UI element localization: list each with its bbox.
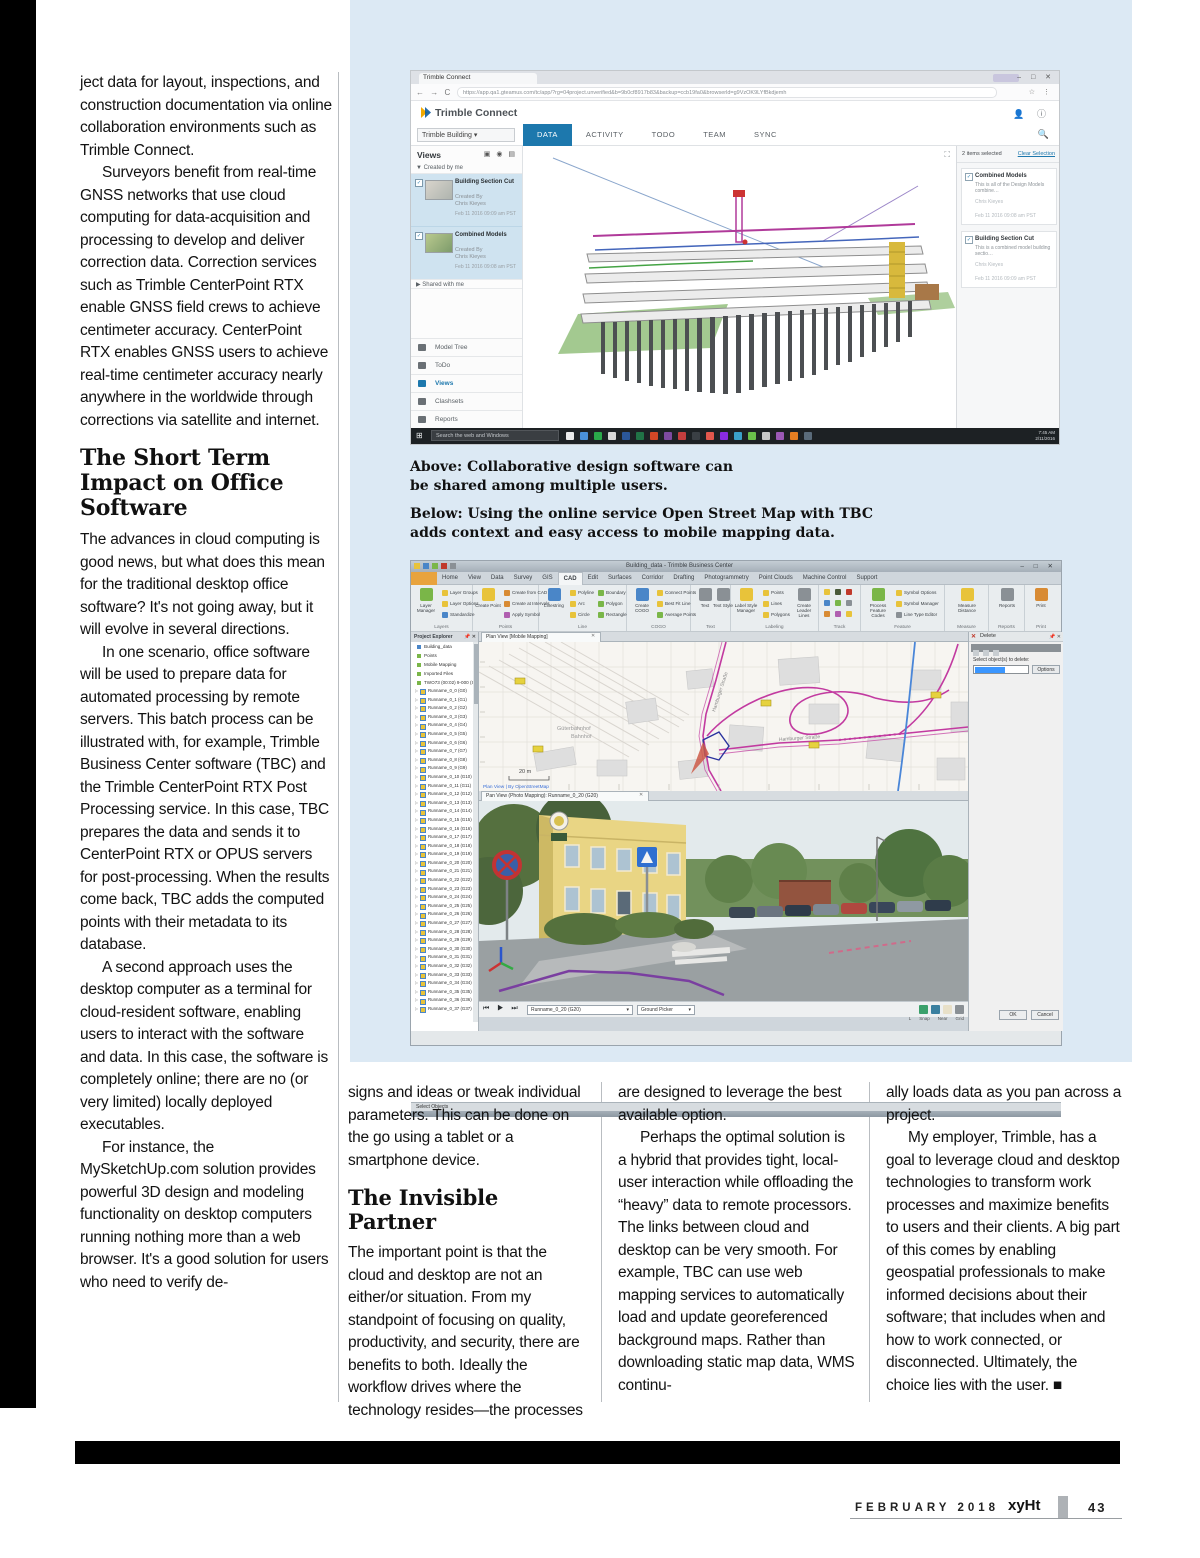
url-bar[interactable]: https://app.qa1.gteamus.com/tc/app/?rg=0… [457, 87, 997, 98]
side-nav-item[interactable]: Model Tree [411, 338, 522, 356]
side-nav-icon [418, 416, 426, 423]
run-icon [420, 904, 426, 910]
selected-item-title: Combined Models [975, 173, 1053, 180]
scrollbar-thumb[interactable] [474, 644, 478, 704]
boundary-button[interactable]: Boundary [597, 588, 626, 597]
run-item[interactable]: ▷Runname_0_5 (G5) [411, 730, 473, 739]
run-item[interactable]: ▷Runname_0_30 (G30) [411, 945, 473, 954]
close-tab-icon[interactable]: ✕ [639, 792, 643, 798]
linestring-button[interactable]: Linestring [541, 588, 567, 608]
run-item[interactable]: ▷Runname_0_9 (G9) [411, 764, 473, 773]
qat-icon[interactable] [423, 563, 429, 569]
run-item[interactable]: ▷Runname_0_37 (G37) [411, 1005, 473, 1014]
run-icon [420, 741, 426, 747]
ribbon-tab[interactable]: Drafting [668, 572, 699, 585]
expand-caret-icon[interactable]: ▷ [415, 687, 418, 696]
best-fit-line-icon [657, 601, 663, 607]
views-panel-action-icons[interactable]: ▣ ◉ ▤ [484, 150, 517, 158]
reports-button[interactable]: Reports [994, 588, 1020, 608]
delete-selection-input[interactable] [973, 665, 1029, 674]
run-icon [420, 818, 426, 824]
label-points-button[interactable]: Points [762, 588, 784, 597]
tc-side-nav: Model Tree ToDo Views Clashsets Reports [411, 338, 522, 428]
run-item[interactable]: ▷Runname_0_4 (G4) [411, 721, 473, 730]
selection-count: 2 items selected [962, 151, 1002, 157]
run-icon [420, 981, 426, 987]
tree-node[interactable]: Points [411, 651, 473, 660]
checkbox-checked-icon[interactable]: ✓ [415, 179, 423, 187]
taskbar-app-icon[interactable] [608, 432, 616, 440]
side-nav-icon [418, 344, 426, 351]
group-shared-with-me[interactable]: ▶ Shared with me [411, 279, 522, 289]
best-fit-line-button[interactable]: Best Fit Line [656, 599, 691, 608]
tree-root[interactable]: Building_data [411, 642, 473, 651]
run-item[interactable]: ▷Runname_0_6 (G6) [411, 739, 473, 748]
map-label-station1: Güterbahnhof [557, 726, 591, 732]
taskbar-app-icon[interactable] [566, 432, 574, 440]
create-point-button[interactable]: Create Point [475, 588, 501, 608]
run-icon [420, 689, 426, 695]
page-edge-bar [0, 0, 36, 1408]
selected-items-list: ✓ Combined Models This is all of the Des… [957, 162, 1059, 288]
run-item[interactable]: ▷Runname_0_22 (G22) [411, 876, 473, 885]
circle-button[interactable]: Circle [569, 610, 590, 619]
status-token: Near [938, 1016, 948, 1021]
selected-item-author: Chris Kieyes [975, 262, 1053, 268]
run-item[interactable]: ▷Runname_0_12 (G12) [411, 790, 473, 799]
run-item[interactable]: ▷Runname_0_3 (G3) [411, 713, 473, 722]
run-icon [420, 715, 426, 721]
polyline-button[interactable]: Polyline [569, 588, 594, 597]
ribbon-group-cogo: Create COGO Connect Points Best Fit Line… [627, 585, 691, 631]
run-icon [420, 844, 426, 850]
taskbar-app-icon[interactable] [678, 432, 686, 440]
view-date: Feb 11 2016 09:09 am PST [455, 211, 521, 217]
view-thumbnail [425, 180, 453, 200]
expand-caret-icon[interactable]: ▷ [415, 928, 418, 937]
expand-viewport-icon[interactable]: ⛶ [944, 150, 950, 160]
view-title: Building Section Cut [455, 179, 519, 186]
side-nav-item[interactable]: ToDo [411, 356, 522, 374]
create-leader-lines-button[interactable]: Create Leader Lines [791, 588, 817, 618]
node-icon [417, 663, 421, 667]
tc-nav-row: Trimble Building ▾ DATAACTIVITYTODOTEAMS… [411, 124, 1059, 146]
run-icon [420, 938, 426, 944]
ribbon-group-points: Create Point Create from CAD Create at I… [473, 585, 539, 631]
taskbar-app-icon[interactable] [776, 432, 784, 440]
checkbox-checked-icon[interactable]: ✓ [415, 232, 423, 240]
run-item[interactable]: ▷Runname_0_26 (G26) [411, 910, 473, 919]
ribbon-tab[interactable]: Home [437, 572, 463, 585]
run-icon [420, 921, 426, 927]
expand-caret-icon[interactable]: ▷ [415, 739, 418, 748]
tc-tab[interactable]: DATA [523, 124, 572, 146]
tree-node[interactable]: TWO73 (00:02) 9-000 (Sh… [411, 678, 473, 687]
tc-tab[interactable]: ACTIVITY [572, 124, 638, 146]
linestring-icon [548, 588, 561, 601]
apply-symbol-button[interactable]: Apply Symbol [503, 610, 540, 619]
group-label: Points [473, 625, 538, 630]
taskbar-app-icon[interactable] [636, 432, 644, 440]
group-label: Track [819, 625, 860, 630]
run-item[interactable]: ▷Runname_0_21 (G21) [411, 867, 473, 876]
circle-icon [570, 612, 576, 618]
qat-icon[interactable] [450, 563, 456, 569]
taskbar-app-icon[interactable] [734, 432, 742, 440]
panel-pin-close-icons[interactable]: 📌 ✕ [464, 632, 476, 642]
polygon-button[interactable]: Polygon [597, 599, 623, 608]
project-explorer-panel: Project Explorer 📌 ✕ Building_data Point… [411, 632, 479, 1031]
create-from-cad-icon [504, 590, 510, 596]
window-controls[interactable]: – □ ✕ [1017, 73, 1055, 81]
run-item[interactable]: ▷Runname_0_1 (G1) [411, 696, 473, 705]
paragraph: Surveyors benefit from real-time GNSS ne… [80, 162, 332, 432]
run-item[interactable]: ▷Runname_0_10 (G10) [411, 773, 473, 782]
ribbon-tab[interactable]: CAD [558, 572, 583, 585]
caption-below: Below: Using the online service Open Str… [410, 505, 890, 543]
tree-nodes: PointsMobile MappingImported FilesTWO73 … [411, 651, 473, 687]
group-label: Text [691, 625, 730, 630]
ribbon-tab[interactable]: GIS [537, 572, 557, 585]
ribbon-tab[interactable]: View [463, 572, 486, 585]
run-item[interactable]: ▷Runname_0_29 (G29) [411, 936, 473, 945]
pan-view-photo[interactable] [479, 801, 968, 1001]
run-item[interactable]: ▷Runname_0_23 (G23) [411, 885, 473, 894]
project-explorer-title: Project Explorer [414, 634, 453, 640]
side-nav-item[interactable]: Clashsets [411, 392, 522, 410]
taskbar-app-icon[interactable] [790, 432, 798, 440]
run-item[interactable]: ▷Runname_0_16 (G16) [411, 825, 473, 834]
tc-content: Views ▣ ◉ ▤ ▼ Created by me ✓ Building S… [411, 146, 1059, 428]
tc-tab[interactable]: TODO [638, 124, 690, 146]
taskbar-app-icon[interactable] [580, 432, 588, 440]
taskbar-app-icon[interactable] [692, 432, 700, 440]
pan-icon[interactable] [931, 1005, 940, 1014]
expand-caret-icon[interactable]: ▷ [415, 773, 418, 782]
dialog-toolbar[interactable] [971, 644, 1061, 652]
rectangle-button[interactable]: Rectangle [597, 610, 627, 619]
run-item[interactable]: ▷Runname_0_8 (G8) [411, 756, 473, 765]
tc-tab[interactable]: SYNC [740, 124, 791, 146]
paragraph: signs and ideas or tweak individual para… [348, 1082, 586, 1172]
print-button[interactable]: Print [1028, 588, 1054, 608]
line-type-editor-button[interactable]: Line Type Editor [895, 610, 937, 619]
run-icon [420, 895, 426, 901]
taskbar-app-icon[interactable] [650, 432, 658, 440]
expand-caret-icon[interactable]: ▷ [415, 910, 418, 919]
search-icon[interactable]: 🔍 [1038, 129, 1049, 140]
footer-black-band [75, 1441, 1120, 1464]
qat-icon[interactable] [414, 563, 420, 569]
options-button[interactable]: Options [1032, 665, 1060, 674]
start-button-icon[interactable]: ⊞ [416, 431, 423, 440]
map-label-station2: Bahnhof [571, 734, 592, 740]
selected-item-description: This is a combined model building sectio… [975, 245, 1053, 257]
expand-caret-icon[interactable]: ▷ [415, 790, 418, 799]
expand-caret-icon[interactable]: ▷ [415, 936, 418, 945]
plan-view-map[interactable]: Güterbahnhof Bahnhof Hamburger Straße Ha… [479, 642, 968, 791]
chevron-down-icon: ▾ [626, 1006, 629, 1015]
ok-button[interactable]: OK [999, 1010, 1027, 1020]
ribbon-tab[interactable]: Surfaces [603, 572, 637, 585]
window-controls[interactable]: – □ ✕ [1020, 562, 1057, 570]
ribbon-tab[interactable]: Photogrammetry [699, 572, 753, 585]
taskbar-clock[interactable]: 7:45 AM 2/11/2016 [1035, 430, 1055, 442]
taskbar-app-icon[interactable] [594, 432, 602, 440]
run-item[interactable]: ▷Runname_0_34 (G34) [411, 979, 473, 988]
run-item[interactable]: ▷Runname_0_24 (G24) [411, 893, 473, 902]
view-list-item[interactable]: ✓ Combined Models Created By Chris Kieye… [411, 227, 522, 280]
expand-caret-icon[interactable]: ▷ [415, 807, 418, 816]
taskbar-app-icon[interactable] [622, 432, 630, 440]
ribbon-tab[interactable]: Machine Control [798, 572, 852, 585]
print-icon [1035, 588, 1048, 601]
browser-menu-icons[interactable]: ☆ ⋮ [1029, 88, 1053, 96]
expand-caret-icon[interactable]: ▷ [415, 1005, 418, 1014]
run-icon [420, 758, 426, 764]
standardize-button[interactable]: Standardize [441, 610, 475, 619]
run-icon [420, 792, 426, 798]
expand-caret-icon[interactable]: ▷ [415, 988, 418, 997]
run-item[interactable]: ▷Runname_0_31 (G31) [411, 953, 473, 962]
expand-caret-icon[interactable]: ▷ [415, 850, 418, 859]
ribbon-group-reports: Reports Reports [989, 585, 1025, 631]
panel-pin-close-icons[interactable]: 📌 ✕ [1049, 633, 1061, 642]
ribbon-tab[interactable]: Support [851, 572, 882, 585]
windows-taskbar: ⊞ Search the web and Windows 7:45 AM 2/1… [411, 428, 1059, 444]
run-item[interactable]: ▷Runname_0_32 (G32) [411, 962, 473, 971]
page-footer: FEBRUARY 2018 xyHt 43 [850, 1496, 1122, 1536]
symbol-options-icon [896, 590, 902, 596]
run-item[interactable]: ▷Runname_0_36 (G36) [411, 996, 473, 1005]
clear-selection-link[interactable]: Clear Selection [1018, 151, 1055, 157]
group-label: Measure [945, 625, 988, 630]
tree-node[interactable]: Imported Files [411, 669, 473, 678]
views-list: ✓ Building Section Cut Created By Chris … [411, 174, 522, 280]
ribbon-tab[interactable]: Point Clouds [754, 572, 798, 585]
create-cogo-button[interactable]: Create COGO [629, 588, 655, 613]
windows-search-box[interactable]: Search the web and Windows [431, 430, 559, 441]
selected-text-highlight [975, 667, 1005, 673]
run-item[interactable]: ▷Runname_0_19 (G19) [411, 850, 473, 859]
taskbar-app-icons[interactable] [566, 432, 812, 440]
run-item[interactable]: ▷Runname_0_28 (G28) [411, 928, 473, 937]
expand-caret-icon[interactable]: ▷ [415, 902, 418, 911]
cancel-button[interactable]: Cancel [1031, 1010, 1059, 1020]
ribbon-tab[interactable]: Survey [509, 572, 538, 585]
run-item[interactable]: ▷Runname_0_14 (G14) [411, 807, 473, 816]
expand-caret-icon[interactable]: ▷ [415, 859, 418, 868]
run-icon [420, 724, 426, 730]
view-list-item[interactable]: ✓ Building Section Cut Created By Chris … [411, 174, 522, 227]
plan-view-tab[interactable]: Plan View [Mobile Mapping] [481, 632, 601, 642]
view-created-by-label: Created By [455, 247, 519, 254]
checkbox-checked-icon[interactable]: ✓ [965, 173, 973, 181]
selected-item-description: This is all of the Design Models combine… [975, 182, 1053, 194]
tc-tab[interactable]: TEAM [689, 124, 740, 146]
run-dropdown[interactable]: Runname_0_20 (G20) ▾ [527, 1005, 633, 1015]
run-icon [420, 878, 426, 884]
selected-item-card[interactable]: ✓ Building Section Cut This is a combine… [961, 231, 1057, 288]
view-date: Feb 11 2016 09:08 am PST [455, 264, 521, 270]
run-item[interactable]: ▷Runname_0_7 (G7) [411, 747, 473, 756]
status-token: Grid [955, 1016, 964, 1021]
expand-caret-icon[interactable]: ▷ [415, 730, 418, 739]
expand-caret-icon[interactable]: ▷ [415, 713, 418, 722]
run-item[interactable]: ▷Runname_0_18 (G18) [411, 842, 473, 851]
expand-caret-icon[interactable]: ▷ [415, 825, 418, 834]
run-icon [420, 990, 426, 996]
ribbon-tabs: HomeViewDataSurveyGISCADEditSurfacesCorr… [437, 572, 882, 584]
measure-distance-button[interactable]: Measure Distance [953, 588, 981, 613]
tbc-view-area: Plan View [Mobile Mapping] ✕ [479, 632, 968, 1031]
run-item[interactable]: ▷Runname_0_25 (G25) [411, 902, 473, 911]
ribbon-tab[interactable]: Data [486, 572, 509, 585]
expand-caret-icon[interactable]: ▷ [415, 756, 418, 765]
expand-caret-icon[interactable]: ▷ [415, 979, 418, 988]
run-icon [420, 706, 426, 712]
symbol-manager-button[interactable]: Symbol Manager [895, 599, 939, 608]
taskbar-app-icon[interactable] [664, 432, 672, 440]
tc-tabs: DATAACTIVITYTODOTEAMSYNC [523, 124, 791, 146]
paragraph: are designed to leverage the best availa… [618, 1082, 856, 1127]
explorer-scrollbar[interactable] [473, 642, 478, 1022]
taskbar-app-icon[interactable] [804, 432, 812, 440]
project-tree: Building_data PointsMobile MappingImport… [411, 642, 473, 1022]
expand-caret-icon[interactable]: ▷ [415, 945, 418, 954]
browser-nav-buttons[interactable]: ← → C [416, 88, 452, 97]
expand-caret-icon[interactable]: ▷ [415, 799, 418, 808]
run-item[interactable]: ▷Runname_0_35 (G35) [411, 988, 473, 997]
expand-caret-icon[interactable]: ▷ [415, 782, 418, 791]
side-nav-item[interactable]: Reports [411, 410, 522, 428]
measure-distance-icon [961, 588, 974, 601]
expand-caret-icon[interactable]: ▷ [415, 876, 418, 885]
run-item[interactable]: ▷Runname_0_0 (G0) [411, 687, 473, 696]
section-heading: The Invisible Partner [348, 1186, 586, 1234]
run-icon [420, 698, 426, 704]
close-tab-icon[interactable]: ✕ [591, 633, 595, 639]
expand-caret-icon[interactable]: ▷ [415, 885, 418, 894]
checkbox-checked-icon[interactable]: ✓ [965, 236, 973, 244]
expand-caret-icon[interactable]: ▷ [415, 816, 418, 825]
browser-tab[interactable]: Trimble Connect [419, 73, 537, 84]
expand-caret-icon[interactable]: ▷ [415, 704, 418, 713]
expand-caret-icon[interactable]: ▷ [415, 764, 418, 773]
layer-manager-button[interactable]: Layer Manager [413, 588, 439, 613]
expand-caret-icon[interactable]: ▷ [415, 747, 418, 756]
expand-caret-icon[interactable]: ▷ [415, 953, 418, 962]
qat-icon[interactable] [432, 563, 438, 569]
ribbon-tab[interactable]: Edit [583, 572, 603, 585]
run-item[interactable]: ▷Runname_0_13 (G13) [411, 799, 473, 808]
run-list: ▷Runname_0_0 (G0)▷Runname_0_1 (G1)▷Runna… [411, 687, 473, 1014]
side-nav-item[interactable]: Views [411, 374, 522, 392]
pan-icon[interactable] [943, 1005, 952, 1014]
ribbon-tab[interactable]: Corridor [637, 572, 669, 585]
paragraph: For instance, the MySketchUp.com solutio… [80, 1137, 332, 1295]
run-item[interactable]: ▷Runname_0_2 (G2) [411, 704, 473, 713]
expand-caret-icon[interactable]: ▷ [415, 893, 418, 902]
pan-icon[interactable] [919, 1005, 928, 1014]
symbol-options-button[interactable]: Symbol Options [895, 588, 936, 597]
selected-item-card[interactable]: ✓ Combined Models This is all of the Des… [961, 168, 1057, 225]
browser-profile-chip[interactable] [993, 74, 1019, 82]
expand-caret-icon[interactable]: ▷ [415, 971, 418, 980]
expand-caret-icon[interactable]: ▷ [415, 842, 418, 851]
pan-view-tab[interactable]: Pan View (Photo Mapping): Runname_0_20 (… [481, 791, 649, 801]
group-created-by-me[interactable]: ▼ Created by me [411, 164, 522, 174]
pan-icon[interactable] [955, 1005, 964, 1014]
view-author: Chris Kieyes [455, 254, 519, 261]
run-icon [420, 852, 426, 858]
picker-mode-dropdown[interactable]: Ground Picker ▾ [637, 1005, 695, 1015]
run-item[interactable]: ▷Runname_0_15 (G15) [411, 816, 473, 825]
qat-icon[interactable] [441, 563, 447, 569]
arc-icon [570, 601, 576, 607]
expand-caret-icon[interactable]: ▷ [415, 867, 418, 876]
delete-dialog-title: Delete [980, 633, 996, 639]
file-tab[interactable] [411, 572, 437, 585]
side-nav-icon [418, 380, 426, 387]
tc-3d-viewport[interactable]: ⛶ [523, 146, 956, 428]
label-lines-button[interactable]: Lines [762, 599, 782, 608]
expand-caret-icon[interactable]: ▷ [415, 721, 418, 730]
ribbon: Layer Manager Layer Groups Layer Options… [411, 585, 1061, 632]
run-item[interactable]: ▷Runname_0_33 (G33) [411, 971, 473, 980]
column-rule-mid1 [601, 1082, 602, 1402]
taskbar-app-icon[interactable] [762, 432, 770, 440]
expand-caret-icon[interactable]: ▷ [415, 696, 418, 705]
selected-item-author: Chris Kieyes [975, 199, 1053, 205]
views-panel-title: Views [417, 150, 441, 160]
layer-manager-icon [420, 588, 433, 601]
plan-view-tabbar: Plan View [Mobile Mapping] ✕ [479, 632, 968, 642]
taskbar-app-icon[interactable] [748, 432, 756, 440]
run-item[interactable]: ▷Runname_0_20 (G20) [411, 859, 473, 868]
label-polygons-button[interactable]: Polygons [762, 610, 790, 619]
run-icon [420, 964, 426, 970]
label-style-manager-button[interactable]: Label Style Manager [733, 588, 759, 613]
text-style-icon [717, 588, 730, 601]
playback-controls[interactable]: ⏮ ▶ ⏭ [483, 1005, 521, 1013]
side-nav-label: ToDo [435, 362, 450, 369]
paragraph: Perhaps the optimal solution is a hybrid… [618, 1127, 856, 1397]
tc-selection-panel: 2 items selected Clear Selection ✓ Combi… [956, 146, 1059, 428]
article-column-2: are designed to leverage the best availa… [618, 1082, 856, 1397]
node-icon [417, 681, 421, 685]
screenshot-trimble-connect: Trimble Connect – □ ✕ ← → C https://app.… [410, 70, 1060, 445]
expand-caret-icon[interactable]: ▷ [415, 919, 418, 928]
quick-access-toolbar[interactable] [414, 563, 456, 569]
taskbar-app-icon[interactable] [706, 432, 714, 440]
expand-caret-icon[interactable]: ▷ [415, 996, 418, 1005]
caption-above: Above: Collaborative design software can… [410, 458, 740, 496]
ribbon-group-feature: Process Feature Codes Symbol Options Sym… [861, 585, 945, 631]
tree-node[interactable]: Mobile Mapping [411, 660, 473, 669]
run-item[interactable]: ▷Runname_0_27 (G27) [411, 919, 473, 928]
project-selector-dropdown[interactable]: Trimble Building ▾ [417, 128, 515, 142]
expand-caret-icon[interactable]: ▷ [415, 962, 418, 971]
taskbar-app-icon[interactable] [720, 432, 728, 440]
pan-view-icons[interactable] [919, 1005, 964, 1014]
process-feature-codes-button[interactable]: Process Feature Codes [863, 588, 893, 618]
run-item[interactable]: ▷Runname_0_17 (G17) [411, 833, 473, 842]
tc-user-help-icons[interactable]: 👤 ⓘ [1013, 107, 1051, 120]
run-item[interactable]: ▷Runname_0_11 (G11) [411, 782, 473, 791]
arc-button[interactable]: Arc [569, 599, 585, 608]
expand-caret-icon[interactable]: ▷ [415, 833, 418, 842]
